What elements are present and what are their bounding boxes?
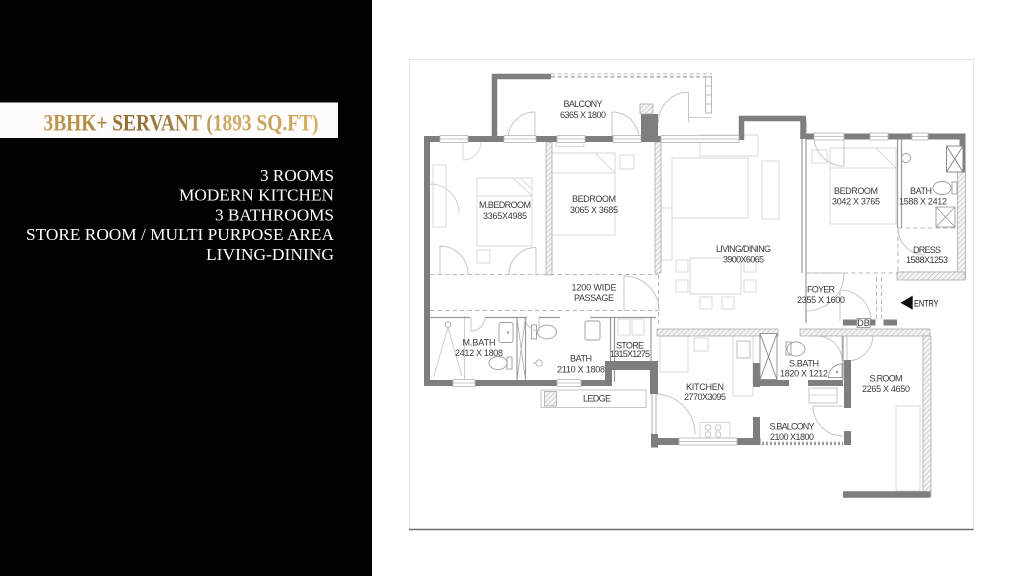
- svg-text:1315X1275: 1315X1275: [610, 349, 650, 359]
- svg-text:BEDROOM: BEDROOM: [834, 186, 878, 196]
- svg-text:PASSAGE: PASSAGE: [574, 293, 614, 303]
- svg-text:S.ROOM: S.ROOM: [870, 374, 903, 384]
- svg-text:3900X6065: 3900X6065: [723, 255, 764, 265]
- svg-text:1588 X 2412: 1588 X 2412: [899, 197, 947, 207]
- svg-text:6365 X 1800: 6365 X 1800: [560, 110, 606, 120]
- svg-text:KITCHEN: KITCHEN: [686, 382, 724, 392]
- svg-text:3BHK+ SERVANT (1893 SQ.FT): 3BHK+ SERVANT (1893 SQ.FT): [44, 111, 319, 136]
- svg-text:ENTRY: ENTRY: [914, 299, 939, 309]
- svg-text:STORE ROOM / MULTI PURPOSE ARE: STORE ROOM / MULTI PURPOSE AREA: [26, 225, 334, 244]
- svg-text:2412 X 1808: 2412 X 1808: [455, 348, 503, 358]
- svg-text:DRESS: DRESS: [913, 245, 941, 255]
- svg-text:M.BATH: M.BATH: [463, 338, 496, 348]
- svg-text:3042 X 3765: 3042 X 3765: [832, 197, 880, 207]
- svg-text:BALCONY: BALCONY: [564, 99, 603, 109]
- svg-text:MODERN KITCHEN: MODERN KITCHEN: [179, 186, 334, 205]
- svg-text:LIVING-DINING: LIVING-DINING: [206, 245, 334, 264]
- svg-text:2110 X 1808: 2110 X 1808: [557, 365, 605, 375]
- svg-text:3365X4985: 3365X4985: [483, 211, 527, 221]
- svg-text:2770X3095: 2770X3095: [684, 392, 726, 402]
- svg-text:S.BALCONY: S.BALCONY: [770, 422, 815, 432]
- svg-text:3 ROOMS: 3 ROOMS: [260, 166, 334, 185]
- svg-text:BEDROOM: BEDROOM: [572, 194, 616, 204]
- svg-text:LIVING/DINING: LIVING/DINING: [716, 244, 771, 254]
- svg-text:2100 X1800: 2100 X1800: [770, 432, 814, 442]
- svg-text:2355 X 1600: 2355 X 1600: [797, 295, 845, 305]
- svg-text:S.BATH: S.BATH: [789, 359, 819, 369]
- svg-text:1820 X 1212: 1820 X 1212: [780, 369, 828, 379]
- svg-text:BATH: BATH: [910, 186, 932, 196]
- svg-text:M.BEDROOM: M.BEDROOM: [479, 200, 531, 210]
- svg-text:1588X1253: 1588X1253: [906, 255, 948, 265]
- svg-text:LEDGE: LEDGE: [583, 394, 611, 404]
- svg-text:3065 X 3685: 3065 X 3685: [570, 205, 618, 215]
- svg-text:DB: DB: [857, 318, 870, 328]
- svg-text:FOYER: FOYER: [807, 285, 836, 295]
- svg-text:1200 WIDE: 1200 WIDE: [572, 283, 617, 293]
- svg-text:3 BATHROOMS: 3 BATHROOMS: [215, 205, 334, 224]
- svg-text:2265 X 4650: 2265 X 4650: [862, 384, 910, 394]
- svg-text:BATH: BATH: [570, 354, 592, 364]
